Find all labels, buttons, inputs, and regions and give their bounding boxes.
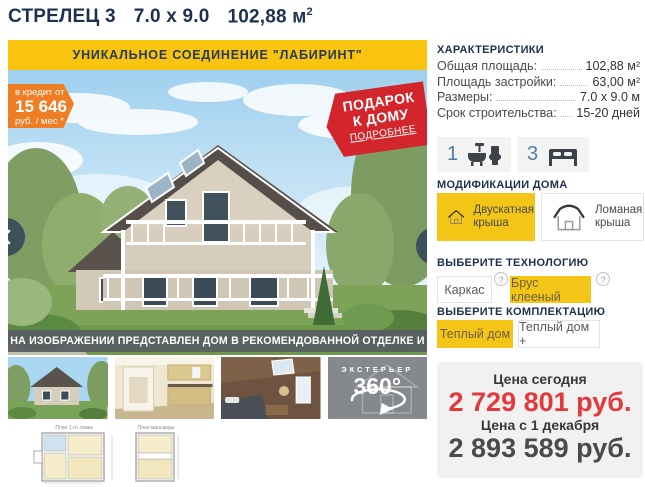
- bedroom-thumb-image: [221, 357, 321, 419]
- dotted-leader: [496, 100, 576, 101]
- hero-gallery: УНИКАЛЬНОЕ СОЕДИНЕНИЕ "ЛАБИРИНТ": [8, 40, 427, 355]
- char-value: 7.0 х 9.0 м: [580, 90, 640, 104]
- floor-plan-2-title: План мансарды: [138, 425, 175, 431]
- technology-header: ВЫБЕРИТЕ ТЕХНОЛОГИЮ: [437, 257, 588, 269]
- characteristics-list: Общая площадь: 102,88 м² Площадь застрой…: [437, 59, 640, 121]
- price-today-value: 2 729 801 руб.: [437, 387, 643, 417]
- thumbnail-360-view[interactable]: ЭКСТЕРЬЕР 360°: [328, 357, 428, 419]
- mansard-roof-house-icon: [551, 200, 587, 234]
- char-label: Площадь застройки:: [437, 75, 556, 89]
- price-later-label: Цена с 1 декабря: [437, 417, 643, 433]
- gable-roof-house-icon: [447, 200, 465, 234]
- characteristic-row: Размеры: 7.0 х 9.0 м: [437, 90, 640, 106]
- price-later-value: 2 893 589 руб.: [437, 433, 643, 463]
- characteristic-row: Общая площадь: 102,88 м²: [437, 59, 640, 75]
- bedrooms-count: 3: [527, 143, 538, 166]
- exterior-thumb-image: [8, 357, 108, 419]
- equipment-option-warm-house-plus[interactable]: Теплый дом +: [518, 320, 600, 348]
- characteristics-header: ХАРАКТЕРИСТИКИ: [437, 44, 544, 56]
- technology-option-karkas[interactable]: Каркас: [437, 276, 492, 303]
- char-value: 63,00 м²: [592, 75, 640, 89]
- credit-badge: в кредит от 15 646 руб. / мес *: [8, 84, 74, 128]
- floor-plan-2-image: План мансарды: [130, 423, 182, 485]
- bedroom-icon: [547, 143, 579, 167]
- bathrooms-feature: 1: [437, 137, 511, 172]
- modification-label: Ломаная крыша: [595, 204, 642, 230]
- help-icon[interactable]: ?: [596, 272, 610, 286]
- kitchen-thumb-image: [115, 357, 215, 419]
- technology-option-brus[interactable]: Брус клееный: [510, 276, 591, 303]
- house-photo: в кредит от 15 646 руб. / мес * ПОДАРОК …: [8, 70, 427, 355]
- promo-banner: УНИКАЛЬНОЕ СОЕДИНЕНИЕ "ЛАБИРИНТ": [8, 40, 427, 70]
- view360-label: ЭКСТЕРЬЕР 360°: [328, 365, 428, 398]
- char-label: Общая площадь:: [437, 59, 537, 73]
- photo-disclaimer: НА ИЗОБРАЖЕНИИ ПРЕДСТАВЛЕН ДОМ В РЕКОМЕН…: [8, 330, 427, 352]
- house-area: 102,88 м2: [227, 6, 312, 28]
- equipment-option-warm-house[interactable]: Теплый дом: [437, 320, 513, 348]
- page-title: СТРЕЛЕЦ 3 7.0 х 9.0 102,88 м2: [8, 6, 313, 28]
- floor-plan-2[interactable]: План мансарды: [130, 423, 182, 485]
- char-value: 15-20 дней: [576, 106, 640, 120]
- char-value: 102,88 м²: [586, 59, 640, 73]
- thumbnail-bedroom[interactable]: [221, 357, 321, 419]
- modification-option-gable-roof[interactable]: Двускатная крыша: [437, 193, 535, 241]
- bedrooms-feature: 3: [517, 137, 589, 172]
- characteristic-row: Площадь застройки: 63,00 м²: [437, 75, 640, 91]
- bathroom-icon: [467, 143, 501, 167]
- equipment-header: ВЫБЕРИТЕ КОМПЛЕКТАЦИЮ: [437, 306, 605, 318]
- characteristic-row: Срок строительства: 15-20 дней: [437, 106, 640, 122]
- char-label: Срок строительства:: [437, 106, 557, 120]
- dotted-leader: [541, 69, 582, 70]
- modification-option-mansard-roof[interactable]: Ломаная крыша: [541, 193, 644, 241]
- floor-plan-1[interactable]: План 1-го этажа: [28, 423, 120, 485]
- modifications-header: МОДИФИКАЦИИ ДОМА: [437, 179, 567, 191]
- thumbnail-kitchen[interactable]: [115, 357, 215, 419]
- credit-amount: 15 646: [15, 98, 74, 116]
- thumbnail-exterior[interactable]: [8, 357, 108, 419]
- house-dimensions: 7.0 х 9.0: [134, 6, 210, 28]
- modification-label: Двускатная крыша: [473, 204, 534, 230]
- floor-plan-1-title: План 1-го этажа: [55, 425, 93, 431]
- char-label: Размеры:: [437, 90, 492, 104]
- floor-plan-1-image: План 1-го этажа: [28, 423, 120, 485]
- chevron-left-icon: [8, 229, 12, 245]
- product-page: СТРЕЛЕЦ 3 7.0 х 9.0 102,88 м2 УНИКАЛЬНОЕ…: [0, 0, 645, 487]
- help-icon[interactable]: ?: [494, 272, 508, 286]
- dotted-leader: [560, 85, 588, 86]
- view360-degrees-text: 360°: [328, 374, 428, 398]
- price-today-label: Цена сегодня: [437, 371, 643, 387]
- bathrooms-count: 1: [447, 143, 458, 166]
- price-box: Цена сегодня 2 729 801 руб. Цена с 1 дек…: [437, 362, 643, 478]
- house-model-name: СТРЕЛЕЦ 3: [8, 6, 116, 28]
- thumbnail-strip: ЭКСТЕРЬЕР 360°: [8, 357, 427, 419]
- dotted-leader: [561, 116, 573, 117]
